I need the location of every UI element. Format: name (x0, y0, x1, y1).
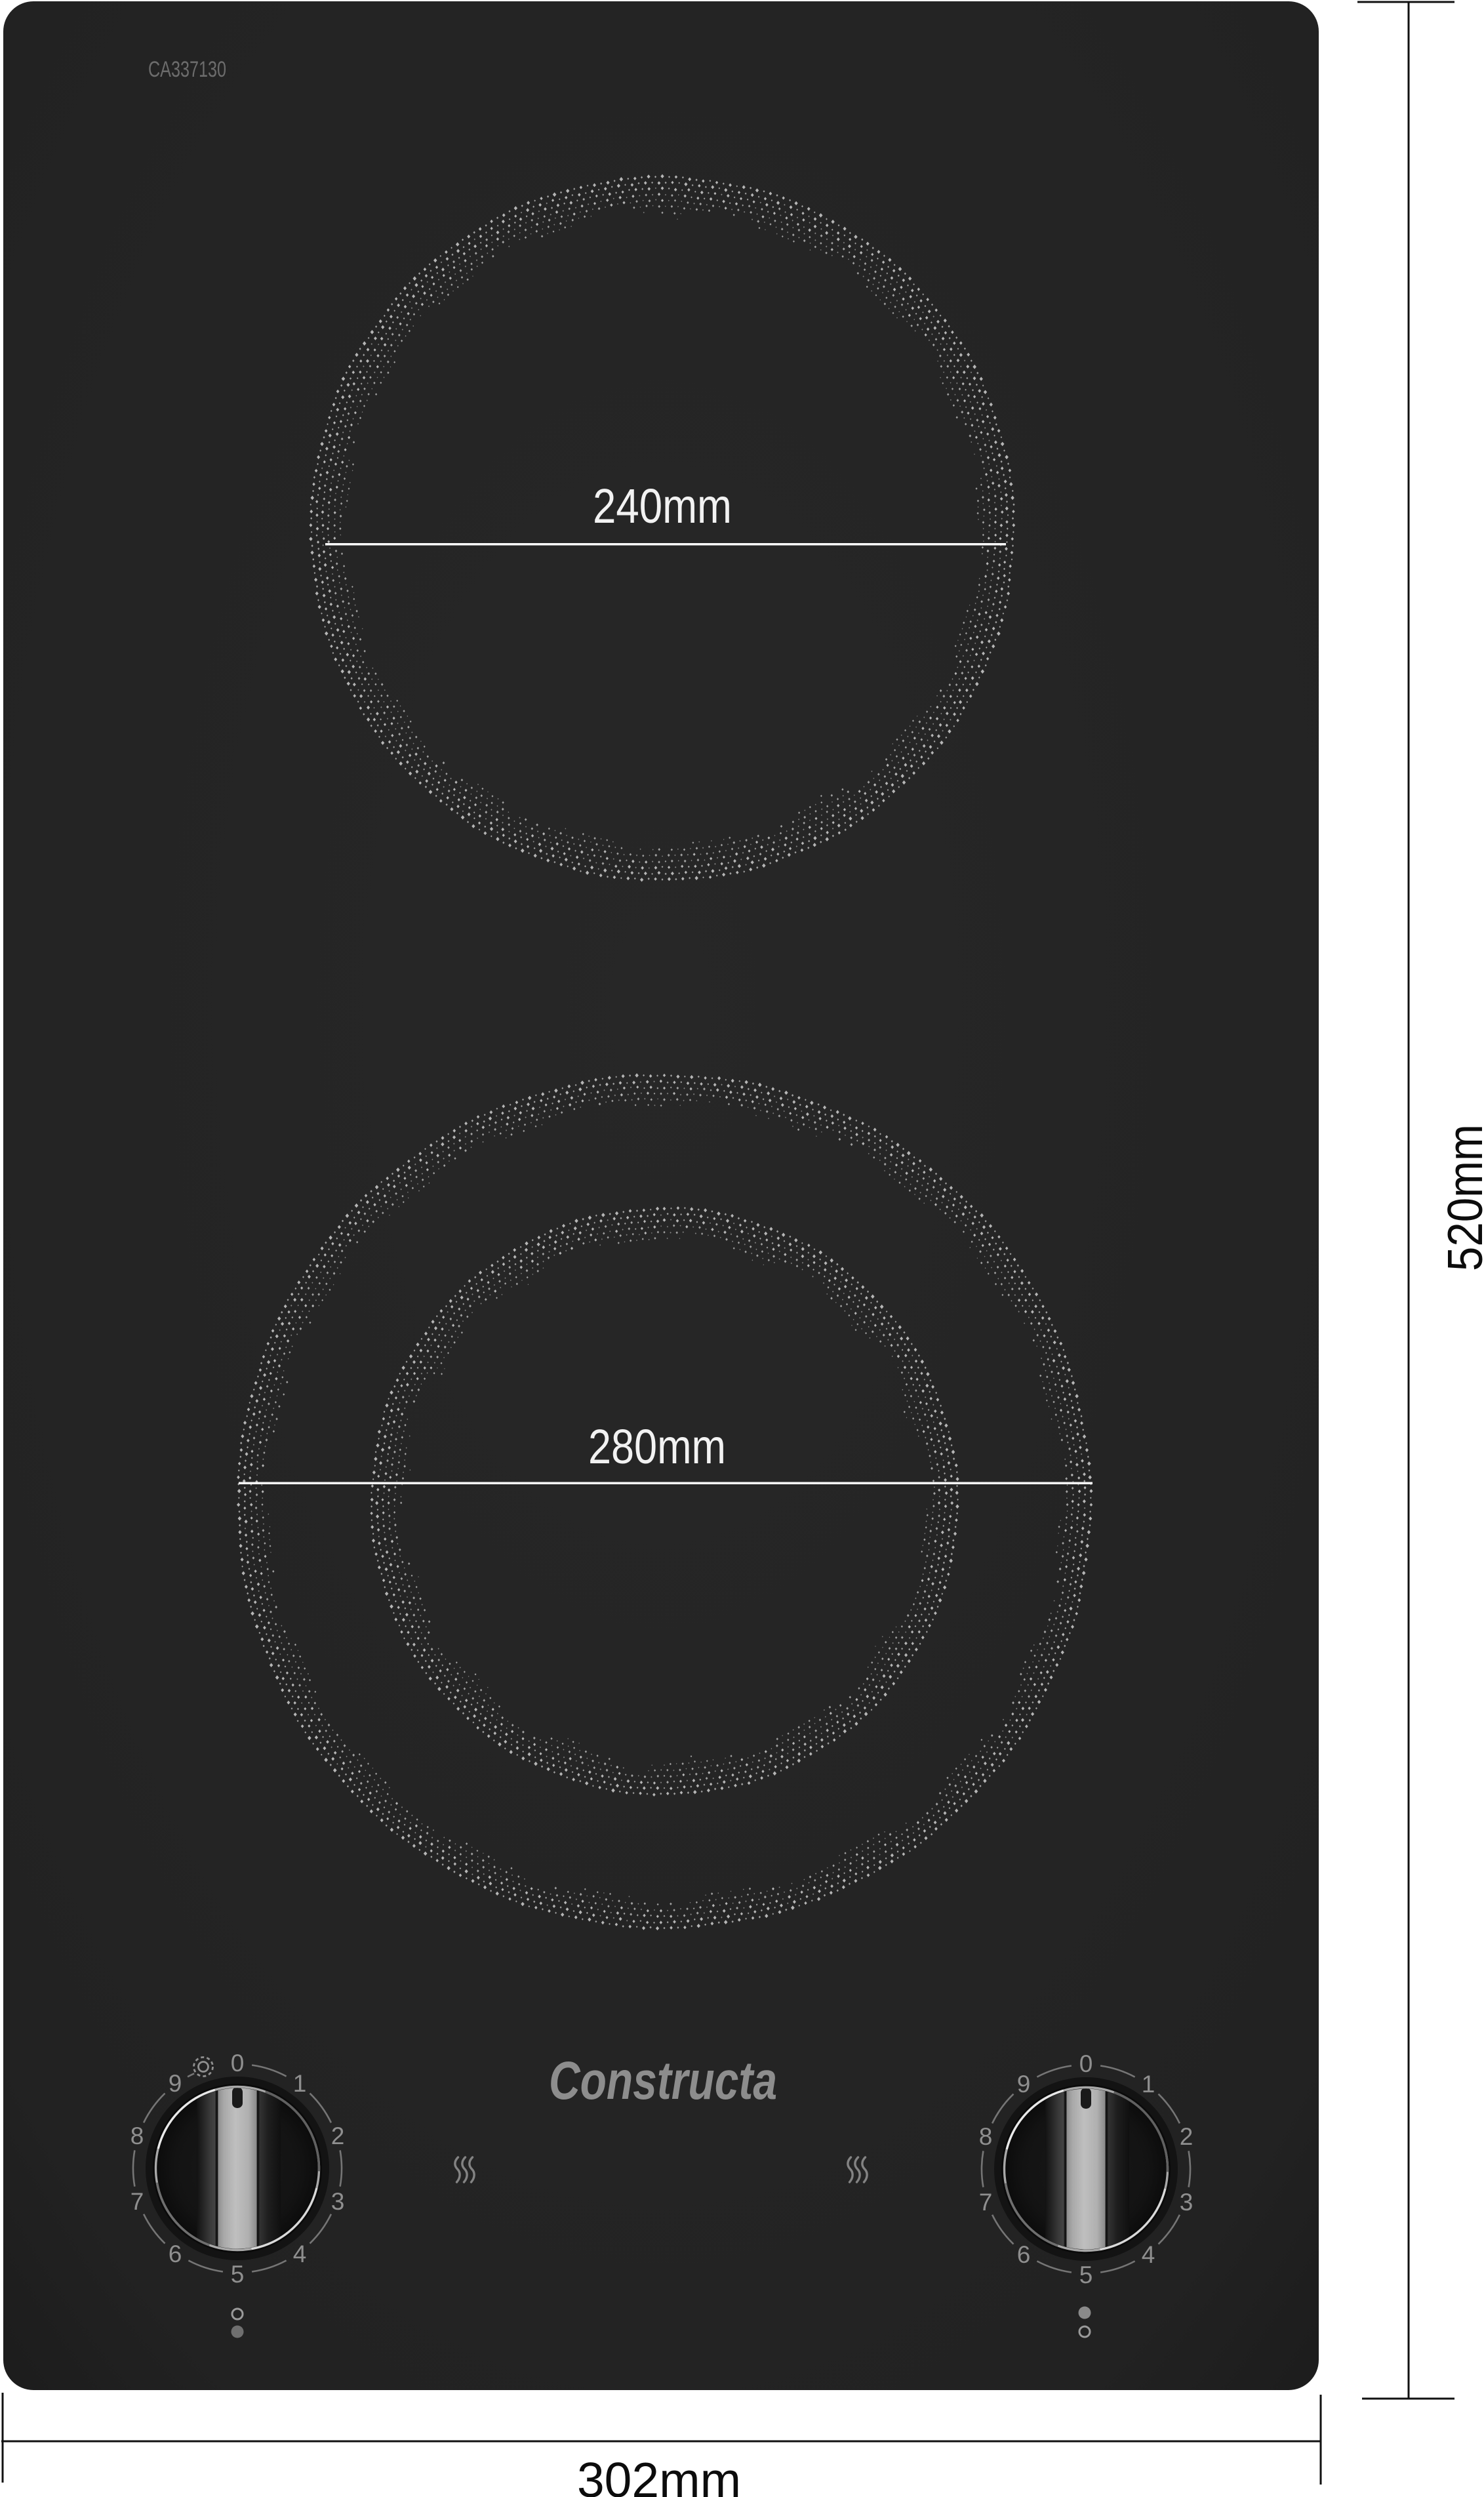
svg-text:6: 6 (169, 2241, 182, 2267)
svg-text:5: 5 (231, 2261, 245, 2288)
svg-text:1: 1 (293, 2070, 307, 2097)
svg-text:8: 8 (979, 2123, 993, 2150)
svg-text:2: 2 (1180, 2123, 1193, 2150)
svg-text:4: 4 (293, 2241, 307, 2267)
svg-text:Constructa: Constructa (549, 2051, 777, 2111)
svg-text:9: 9 (1017, 2071, 1031, 2098)
svg-text:0: 0 (1079, 2050, 1093, 2077)
svg-text:0: 0 (231, 2050, 245, 2077)
svg-text:7: 7 (130, 2188, 144, 2215)
svg-text:5: 5 (1079, 2262, 1093, 2288)
svg-text:2: 2 (331, 2122, 345, 2149)
svg-text:CA337130: CA337130 (148, 57, 226, 82)
svg-text:280mm: 280mm (588, 1419, 726, 1474)
svg-text:302mm: 302mm (577, 2452, 741, 2497)
svg-text:520mm: 520mm (1437, 1124, 1484, 1271)
svg-text:3: 3 (1180, 2189, 1193, 2216)
svg-text:4: 4 (1142, 2241, 1155, 2268)
svg-text:6: 6 (1017, 2241, 1031, 2268)
svg-text:3: 3 (331, 2188, 345, 2215)
svg-text:7: 7 (979, 2189, 993, 2216)
svg-text:8: 8 (130, 2122, 144, 2149)
svg-text:1: 1 (1142, 2071, 1155, 2098)
svg-text:240mm: 240mm (593, 479, 732, 533)
svg-text:9: 9 (169, 2070, 182, 2097)
